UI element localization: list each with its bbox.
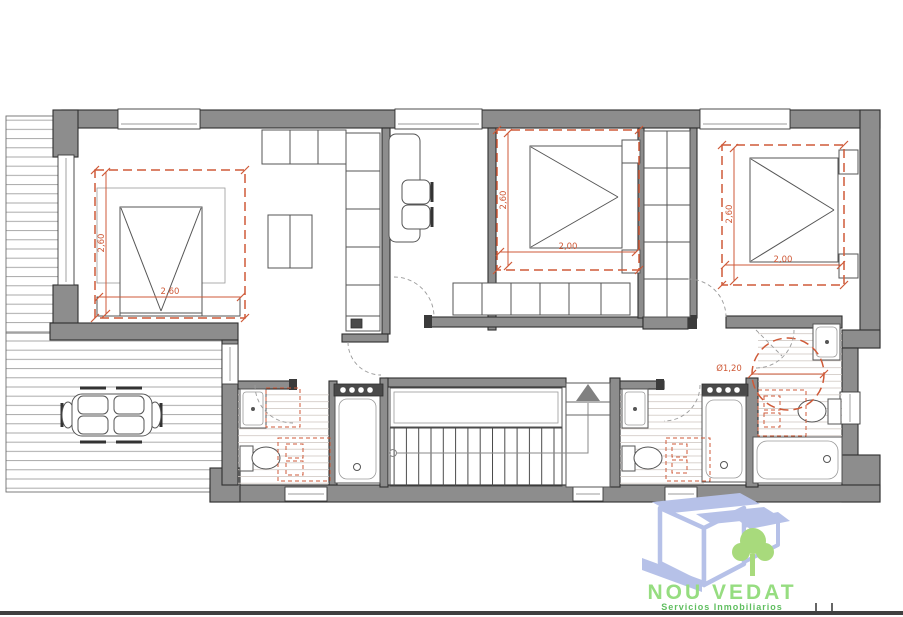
- logo-title: NOU VEDAT: [647, 581, 796, 604]
- appliance: [351, 319, 362, 328]
- dim-label-left-vertical: 2,60: [97, 234, 107, 253]
- dining-table-set: [62, 388, 161, 442]
- logo: NOU VEDAT Servicios Inmobiliarios: [642, 493, 797, 612]
- dim-label-right-horizontal: 2,00: [774, 255, 793, 265]
- toilet-3: [798, 399, 841, 424]
- staircase: [390, 383, 611, 487]
- nightstand: [839, 150, 858, 174]
- dim-label-middle-horizontal: 2,00: [559, 242, 578, 252]
- stair-treads: [390, 428, 562, 486]
- bathtub-3: [753, 437, 842, 483]
- window-right-bathroom: [840, 392, 860, 424]
- bed-3: [750, 158, 838, 262]
- bed-2: [530, 146, 622, 248]
- dim-label-middle-vertical: 2,60: [499, 191, 509, 210]
- window-bottom-2: [573, 487, 603, 501]
- logo-subtitle: Servicios Inmobiliarios: [661, 602, 783, 612]
- sink-1: [240, 389, 266, 428]
- terrace-door-opening: [222, 344, 238, 384]
- window-top-right: [700, 109, 790, 129]
- dim-label-right-vertical: 2,60: [725, 205, 735, 224]
- bathtub-1: [335, 395, 380, 483]
- vanity-shelf-2: [702, 384, 748, 396]
- turning-circle-label: Ø1,20: [716, 363, 742, 374]
- bedroom-right: [750, 150, 858, 278]
- page: Ø1,20 2,60 2,60 2,60 2,00 2,60 2,00: [0, 0, 903, 617]
- vanity-shelf-1: [334, 384, 383, 396]
- dim-label-left-horizontal: 2,60: [161, 287, 180, 297]
- logo-house-icon: [642, 493, 790, 592]
- window-left-slider: [58, 155, 74, 285]
- side-table: [268, 215, 312, 268]
- wardrobe: [644, 131, 690, 317]
- sink-2: [622, 389, 648, 428]
- toilet-1: [240, 446, 280, 471]
- nightstand: [839, 254, 858, 278]
- bedroom-left: [97, 130, 380, 331]
- study-nook: [389, 134, 432, 242]
- window-bottom-1: [285, 487, 327, 501]
- sideboard: [453, 283, 630, 315]
- floor-plan: Ø1,20 2,60 2,60 2,60 2,00 2,60 2,00: [0, 0, 903, 617]
- tall-cabinet: [346, 133, 380, 331]
- window-top-middle: [395, 109, 482, 129]
- bathtub-2: [702, 396, 746, 482]
- bathroom-left: [238, 384, 383, 485]
- kitchen-counter: [262, 130, 346, 164]
- bathroom-middle: [620, 384, 748, 485]
- sink-3: [813, 324, 840, 360]
- window-top-left: [118, 109, 200, 129]
- toilet-2: [622, 446, 662, 471]
- nightstand: [622, 140, 640, 163]
- door-arc-hallway: [348, 342, 381, 375]
- door-arc-bedroom-middle: [394, 277, 434, 317]
